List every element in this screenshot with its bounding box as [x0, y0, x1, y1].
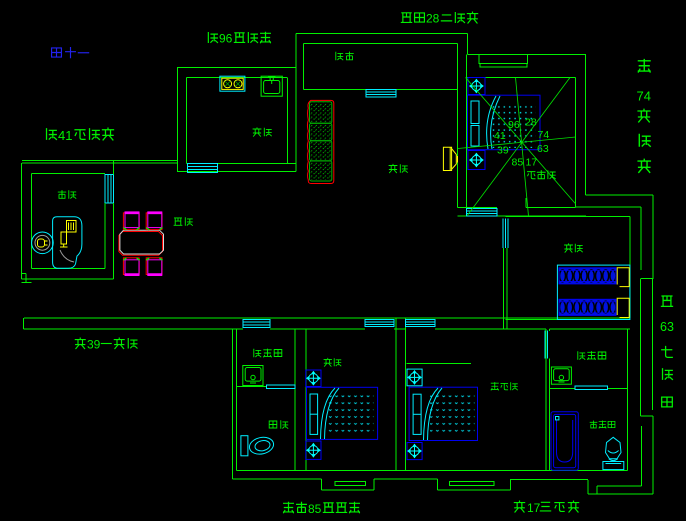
svg-text:39: 39	[497, 145, 509, 157]
svg-text:96: 96	[508, 119, 520, 131]
svg-text:74: 74	[538, 129, 550, 141]
svg-text:28: 28	[525, 117, 537, 129]
svg-text:74: 74	[637, 89, 651, 104]
svg-text:63: 63	[537, 143, 549, 155]
svg-text:28: 28	[426, 12, 440, 26]
svg-text:63: 63	[660, 320, 674, 334]
svg-text:96: 96	[219, 32, 233, 46]
svg-text:85: 85	[308, 502, 322, 516]
svg-text:39: 39	[87, 338, 101, 352]
svg-text:41: 41	[58, 128, 72, 143]
svg-text:17: 17	[526, 157, 538, 169]
svg-text:85: 85	[512, 157, 524, 169]
svg-text:41: 41	[494, 130, 506, 142]
svg-text:17: 17	[527, 501, 541, 515]
